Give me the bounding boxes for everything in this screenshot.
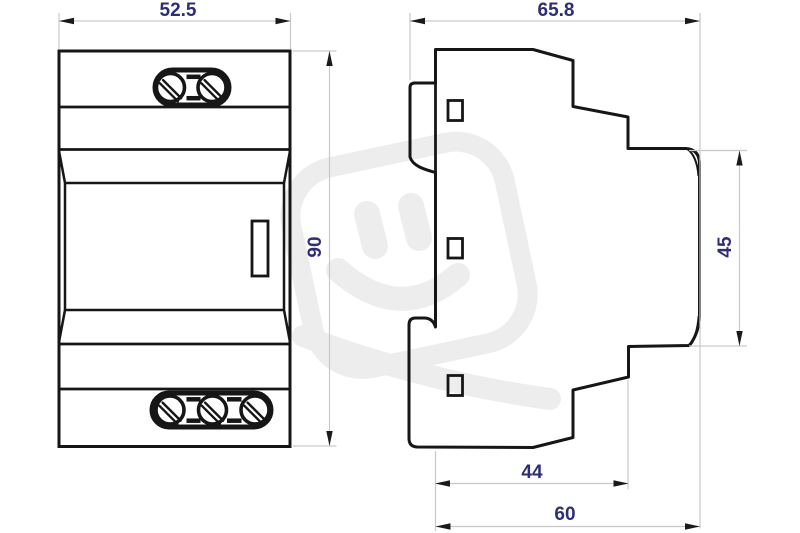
dim-label-front-face-height: 45 <box>715 236 736 258</box>
dim-arrow <box>326 51 332 66</box>
terminal-screw <box>198 74 226 102</box>
bottom-terminal-block <box>152 393 271 427</box>
front-body-outline <box>59 51 290 447</box>
dim-arrow <box>685 523 700 529</box>
dim-arrow <box>614 480 629 486</box>
terminal-screw <box>157 74 185 102</box>
watermark-smile-arc <box>338 270 458 299</box>
dim-arrow <box>436 523 451 529</box>
dim-front-width: 52.5 <box>59 0 291 49</box>
watermark-plug-pin-left <box>367 214 375 246</box>
dim-arrow <box>736 331 742 346</box>
terminal-screw <box>199 396 227 424</box>
dim-arrow <box>736 151 742 166</box>
front-marking-slot <box>252 221 268 276</box>
side-marker-square-top <box>448 101 463 121</box>
dim-arrow <box>410 18 425 24</box>
dim-total-depth: 60 <box>436 451 701 531</box>
dim-label-side-depth: 65.8 <box>538 0 575 21</box>
dim-label-total-depth: 60 <box>554 504 575 525</box>
dim-label-front-height: 90 <box>305 236 326 257</box>
terminal-screw <box>156 396 184 424</box>
dim-label-front-width: 52.5 <box>160 0 197 21</box>
dim-label-lower-depth: 44 <box>521 462 543 483</box>
dim-arrow <box>276 18 291 24</box>
dim-arrow <box>685 18 700 24</box>
front-view <box>59 51 290 447</box>
dim-arrow <box>59 18 74 24</box>
side-marker-square-middle <box>448 239 463 259</box>
dim-arrow <box>326 431 332 446</box>
terminal-screw <box>241 396 269 424</box>
dim-arrow <box>435 480 450 486</box>
drawing-canvas: 52.5 90 65.8 45 <box>0 0 800 533</box>
front-recessed-panel <box>59 151 290 342</box>
watermark-logo <box>281 132 550 399</box>
watermark-plug-pin-right <box>411 206 419 238</box>
technical-drawing: 52.5 90 65.8 45 <box>0 0 800 533</box>
top-terminal-block <box>155 70 229 105</box>
